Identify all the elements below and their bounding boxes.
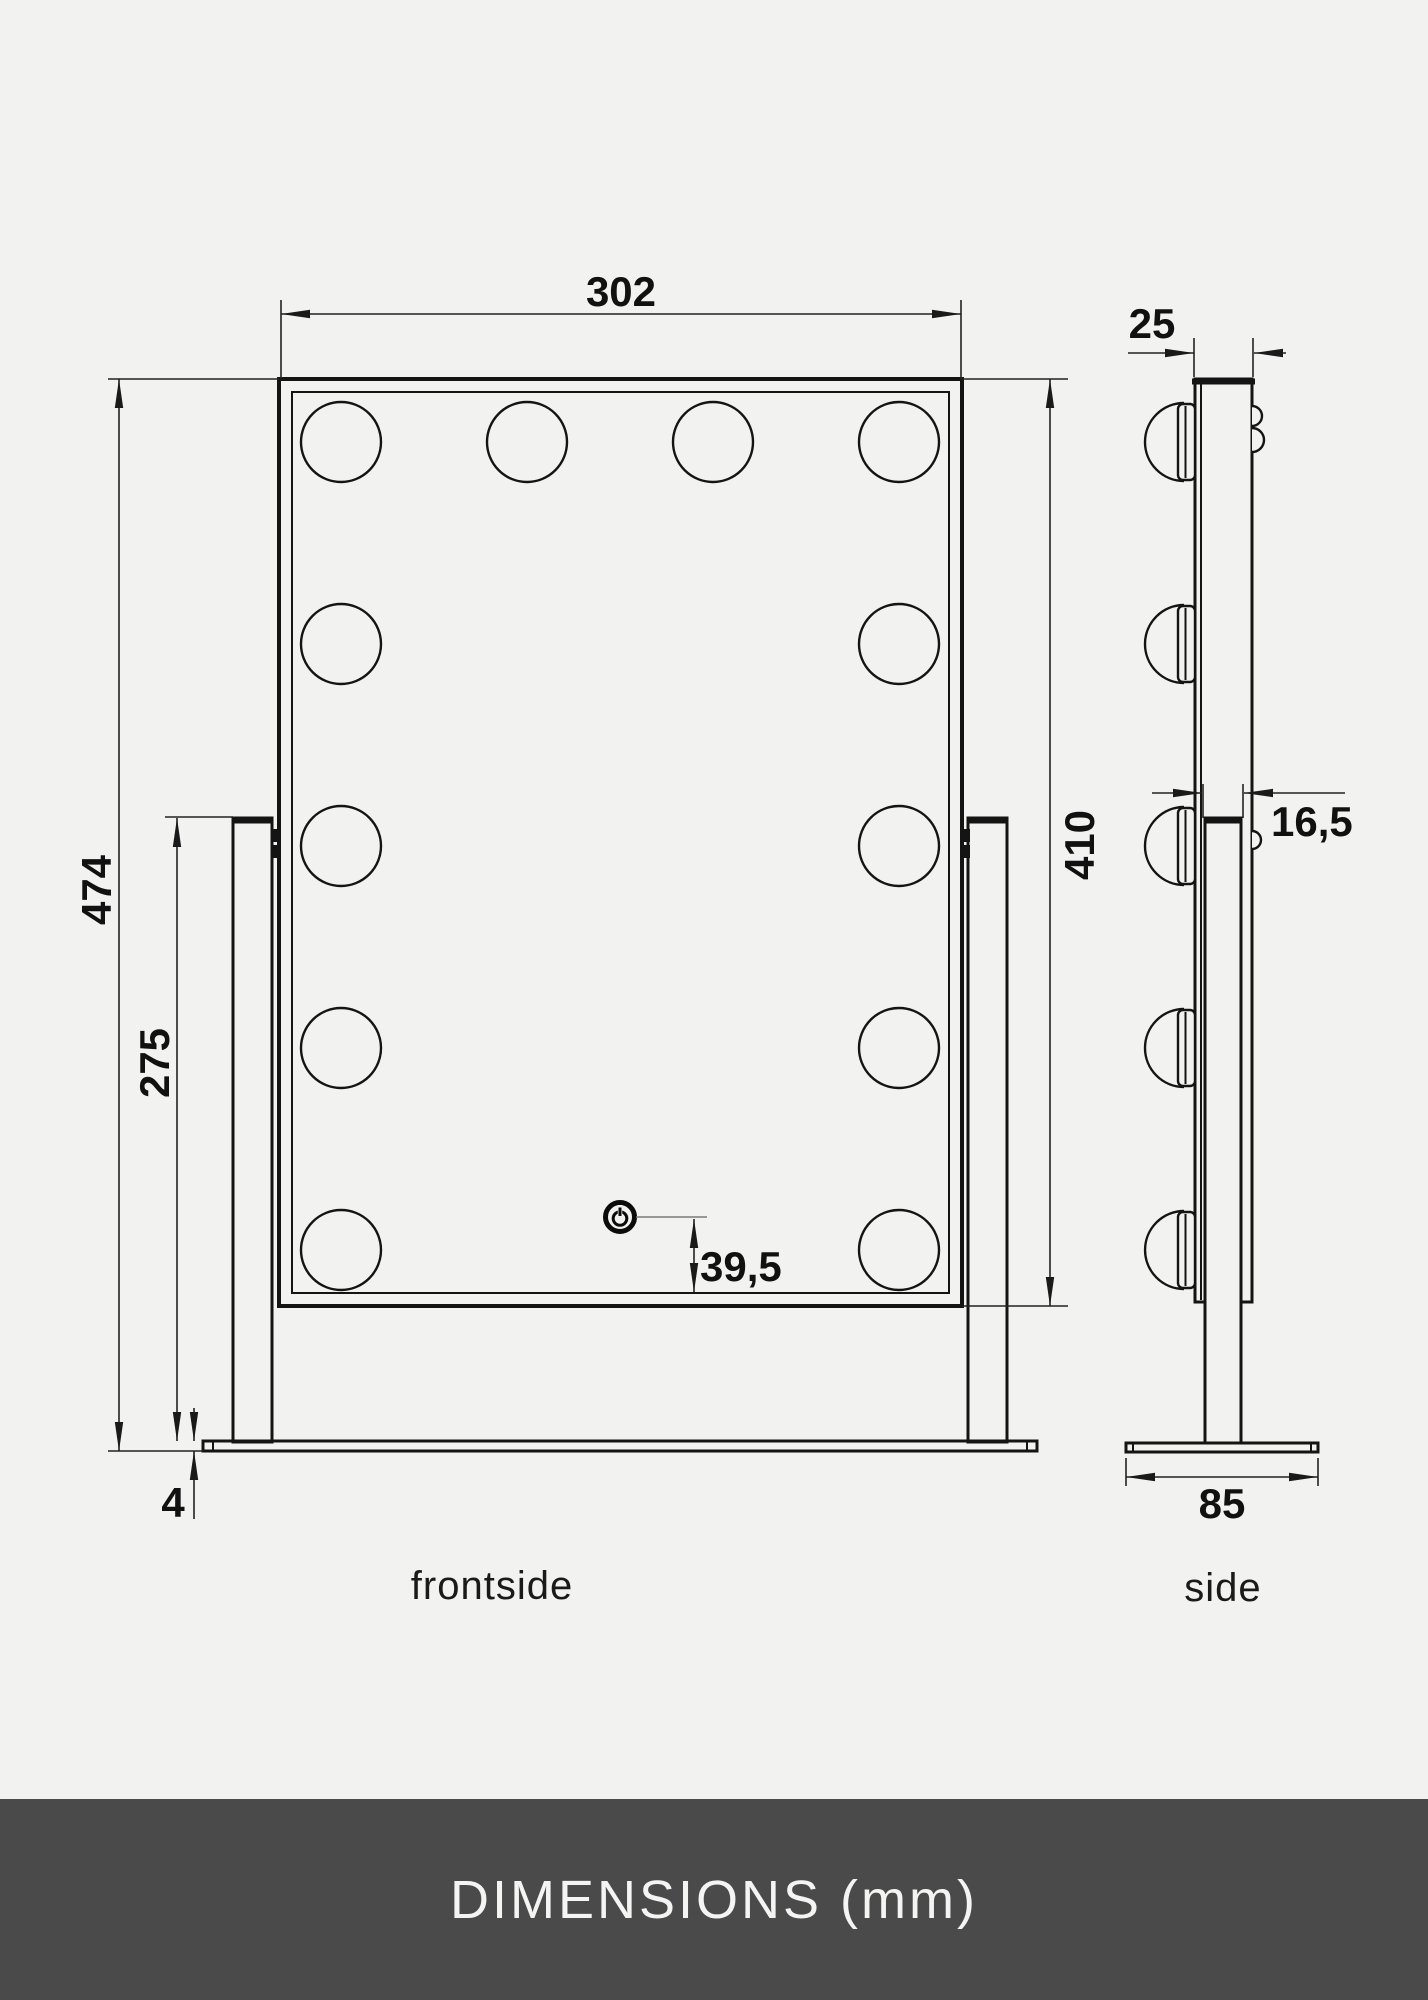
hinge-left — [271, 845, 280, 858]
base-plate — [203, 1441, 1037, 1451]
back-knob — [1252, 406, 1262, 426]
bulb — [859, 806, 939, 886]
dim-width: 302 — [586, 268, 656, 315]
hinge-right — [961, 829, 970, 842]
dim-total-height: 474 — [73, 854, 120, 925]
bulb — [487, 402, 567, 482]
bulb — [673, 402, 753, 482]
bulb — [859, 402, 939, 482]
front-view: 302 474 275 4 410 39,5 frontside — [73, 268, 1103, 1608]
side-view-label: side — [1184, 1566, 1261, 1610]
bulb — [301, 604, 381, 684]
bulb — [859, 1210, 939, 1290]
footer-title: DIMENSIONS (mm) — [450, 1869, 978, 1931]
stand-arm-right — [968, 818, 1007, 1442]
power-icon — [606, 1203, 635, 1232]
stand-arm-profile — [1205, 818, 1241, 1443]
dim-base-thickness: 4 — [161, 1479, 185, 1526]
bulb — [301, 806, 381, 886]
mirror-frame-inner — [292, 392, 949, 1293]
bulb — [301, 1008, 381, 1088]
bulb — [301, 1210, 381, 1290]
base-plate-profile — [1126, 1443, 1318, 1452]
bulb — [859, 1008, 939, 1088]
dim-base-depth: 85 — [1199, 1480, 1246, 1527]
dim-mirror-height: 410 — [1056, 810, 1103, 880]
bulb — [301, 402, 381, 482]
back-knob — [1252, 428, 1264, 452]
hinge-left — [271, 829, 280, 842]
technical-drawing: 302 474 275 4 410 39,5 frontside — [0, 0, 1428, 1799]
bulb — [859, 604, 939, 684]
dim-button-offset: 39,5 — [700, 1243, 782, 1290]
dim-stand-thickness: 16,5 — [1271, 798, 1353, 845]
front-view-label: frontside — [411, 1564, 573, 1608]
dim-stand-height: 275 — [131, 1028, 178, 1098]
back-knob — [1252, 831, 1261, 849]
dimension-diagram-page: 302 474 275 4 410 39,5 frontside — [0, 0, 1428, 2000]
stand-arm-left — [233, 818, 272, 1442]
footer-banner: DIMENSIONS (mm) — [0, 1799, 1428, 2000]
side-view: 25 16,5 85 side — [1126, 300, 1353, 1610]
bulb-mounts — [1178, 404, 1195, 1288]
hinge-right — [961, 845, 970, 858]
dim-depth: 25 — [1129, 300, 1176, 347]
